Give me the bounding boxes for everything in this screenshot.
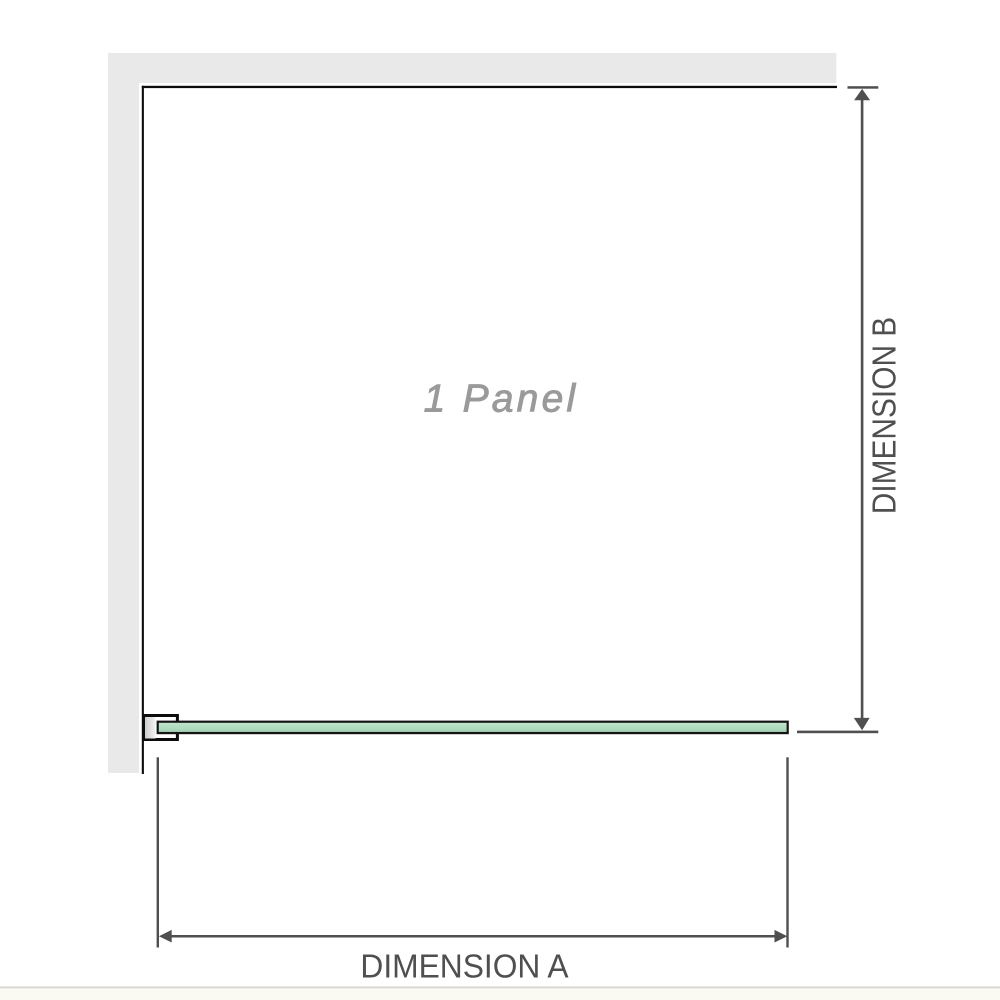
svg-text:DIMENSION A: DIMENSION A <box>360 948 569 985</box>
svg-text:DIMENSION B: DIMENSION B <box>866 317 903 514</box>
svg-text:1 Panel: 1 Panel <box>424 377 579 420</box>
